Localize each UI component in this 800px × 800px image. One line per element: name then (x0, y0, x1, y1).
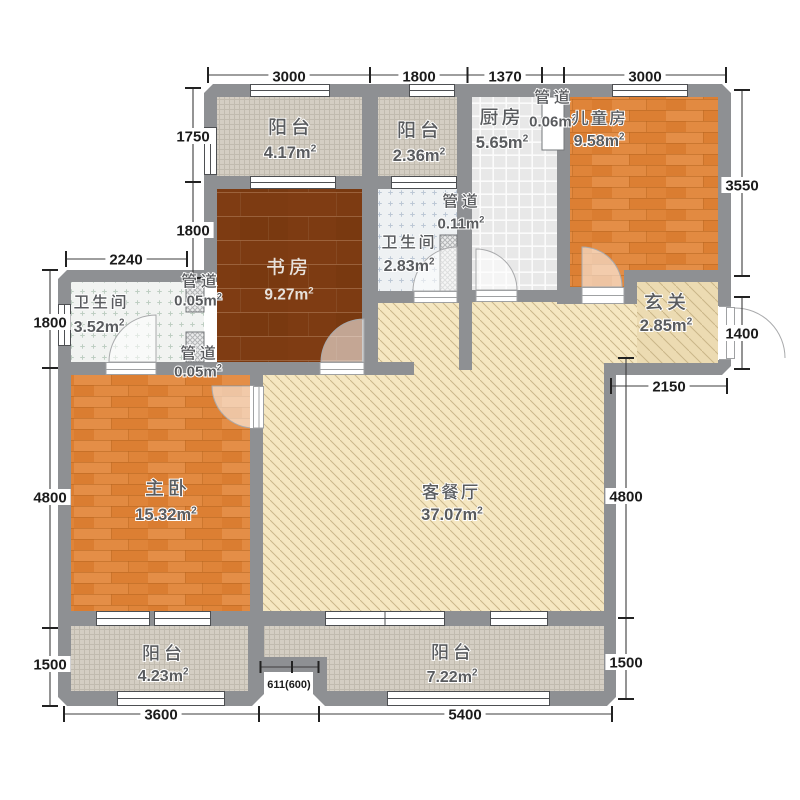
svg-text:1370: 1370 (488, 68, 521, 85)
svg-text:3000: 3000 (272, 68, 305, 85)
svg-text:9.27m2: 9.27m2 (264, 286, 313, 304)
svg-text:5.65m2: 5.65m2 (476, 134, 529, 152)
svg-text:2.36m2: 2.36m2 (393, 147, 446, 165)
svg-text:2240: 2240 (109, 251, 142, 268)
svg-text:1750: 1750 (176, 128, 209, 145)
svg-text:1800: 1800 (176, 222, 209, 239)
svg-text:2150: 2150 (652, 378, 685, 395)
svg-text:3600: 3600 (144, 706, 177, 723)
svg-text:611(600): 611(600) (267, 679, 311, 691)
svg-text:4800: 4800 (33, 489, 66, 506)
svg-text:1500: 1500 (609, 654, 642, 671)
svg-text:15.32m2: 15.32m2 (135, 506, 197, 524)
svg-text:0.11m2: 0.11m2 (438, 215, 485, 233)
svg-text:0.05m2: 0.05m2 (174, 292, 222, 310)
svg-text:4.23m2: 4.23m2 (138, 667, 189, 685)
svg-text:4800: 4800 (609, 488, 642, 505)
svg-text:2.85m2: 2.85m2 (640, 317, 693, 335)
svg-text:7.22m2: 7.22m2 (427, 668, 478, 686)
svg-text:0.05m2: 0.05m2 (174, 363, 222, 381)
svg-text:2.83m2: 2.83m2 (384, 257, 435, 275)
svg-text:1800: 1800 (402, 68, 435, 85)
svg-text:1400: 1400 (725, 325, 758, 342)
svg-text:1800: 1800 (33, 314, 66, 331)
svg-text:4.17m2: 4.17m2 (264, 144, 317, 162)
svg-text:37.07m2: 37.07m2 (421, 506, 483, 524)
svg-text:3000: 3000 (628, 68, 661, 85)
svg-text:5400: 5400 (448, 706, 481, 723)
svg-text:3550: 3550 (725, 177, 758, 194)
svg-text:3.52m2: 3.52m2 (74, 318, 125, 336)
svg-text:1500: 1500 (33, 656, 66, 673)
svg-text:9.58m2: 9.58m2 (574, 132, 625, 150)
svg-text:0.06m2: 0.06m2 (529, 113, 577, 131)
